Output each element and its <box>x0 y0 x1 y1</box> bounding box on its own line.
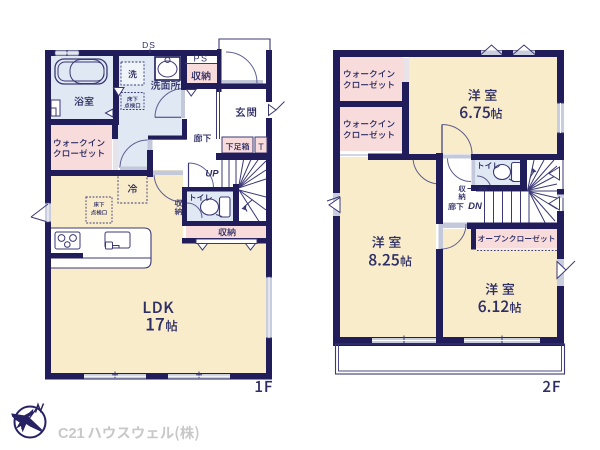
svg-text:UP: UP <box>205 169 219 180</box>
svg-text:PS: PS <box>193 54 208 64</box>
svg-text:T: T <box>258 142 264 152</box>
svg-text:DS: DS <box>142 40 156 50</box>
svg-text:C21: C21 <box>58 426 85 442</box>
svg-text:DN: DN <box>468 201 483 212</box>
